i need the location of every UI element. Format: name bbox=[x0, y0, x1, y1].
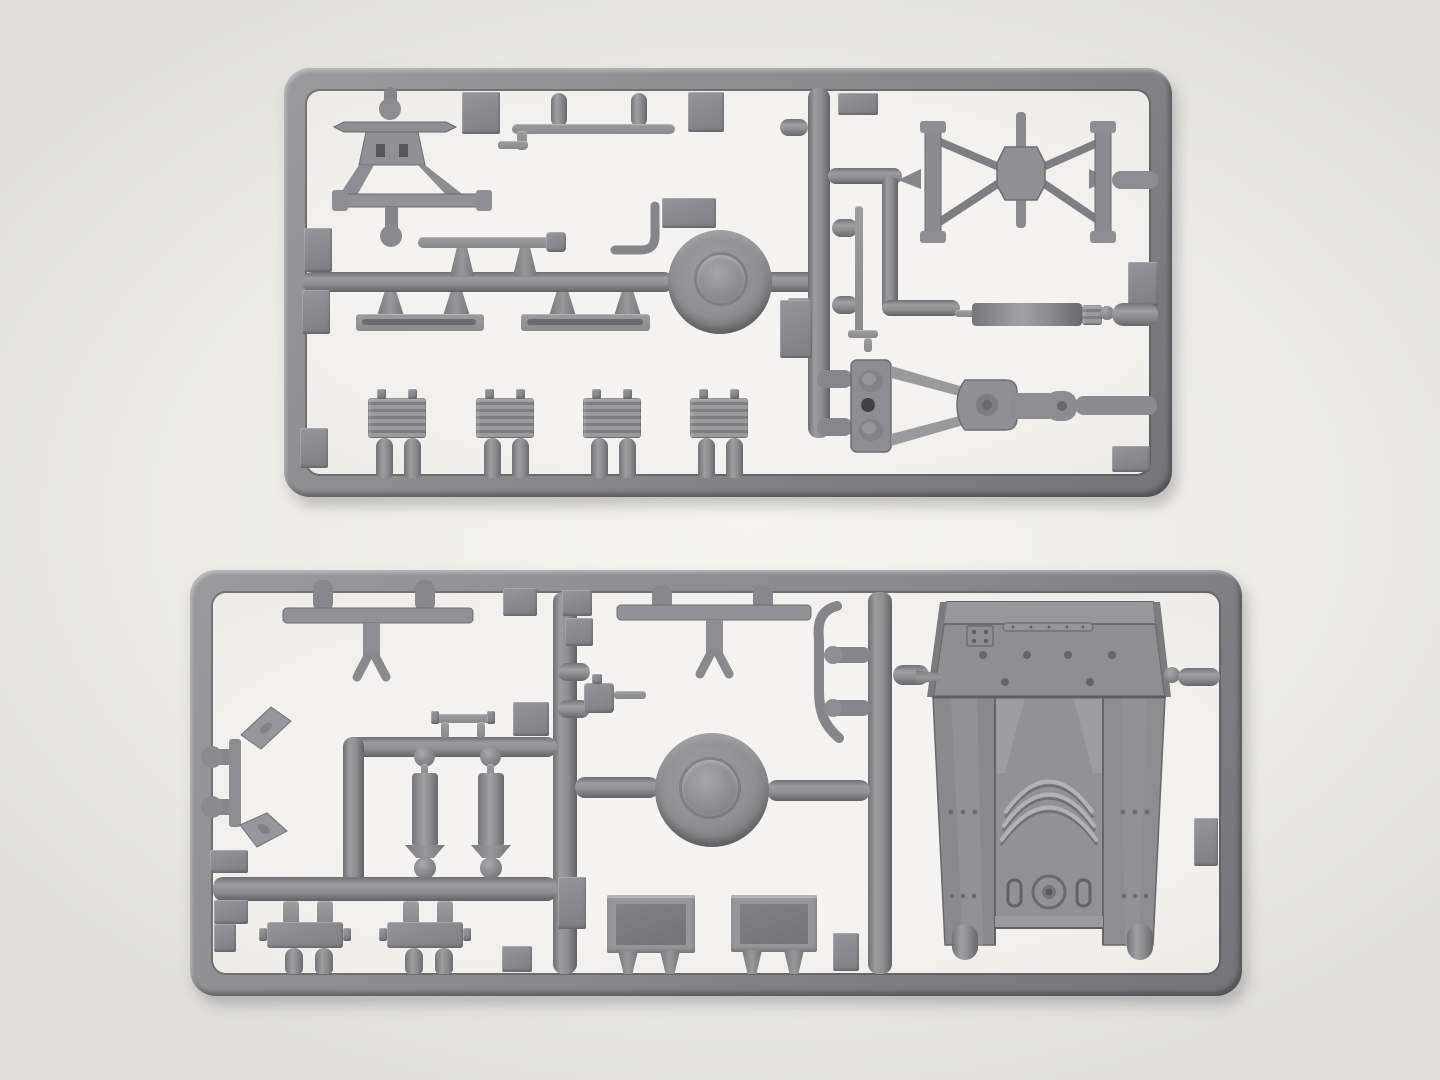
gate bbox=[317, 901, 333, 924]
gate bbox=[285, 948, 303, 974]
gate-ball bbox=[480, 857, 502, 879]
molding-tab bbox=[565, 618, 593, 646]
molding-tab bbox=[558, 877, 586, 929]
gate bbox=[1127, 924, 1153, 960]
link-nub bbox=[379, 928, 387, 941]
gate-ball bbox=[414, 857, 436, 879]
handle-leg bbox=[477, 722, 485, 738]
gate bbox=[558, 663, 590, 681]
gate bbox=[283, 901, 299, 924]
runner bbox=[343, 737, 364, 889]
gate bbox=[952, 924, 978, 960]
gate bbox=[435, 948, 453, 974]
molding-tab bbox=[1194, 818, 1218, 866]
lower-sprue bbox=[0, 0, 1440, 1080]
molding-tab bbox=[503, 588, 537, 616]
cylinder-ring bbox=[410, 812, 440, 819]
t-bar-fork-right-part bbox=[610, 572, 820, 684]
photo-of-model-kit-sprues bbox=[0, 0, 1440, 1080]
handle-leg bbox=[441, 722, 449, 738]
handle-nub bbox=[431, 711, 439, 724]
t-bar-fork-left-part bbox=[275, 573, 485, 685]
fender-bracket-part bbox=[195, 695, 295, 875]
cylinder-ring bbox=[476, 812, 506, 819]
runner bbox=[343, 737, 557, 757]
link-nub bbox=[463, 928, 471, 941]
molding-tab bbox=[214, 900, 248, 924]
gate bbox=[403, 901, 419, 924]
gate bbox=[405, 948, 423, 974]
track-link-part bbox=[267, 922, 343, 948]
handle-nub bbox=[487, 711, 495, 724]
mg-mount-part bbox=[584, 683, 614, 713]
gate bbox=[437, 901, 453, 924]
runner bbox=[213, 877, 557, 901]
track-link-part bbox=[387, 922, 463, 948]
gate bbox=[315, 948, 333, 974]
molding-tab bbox=[833, 933, 859, 971]
hub-sink-mark bbox=[696, 774, 724, 800]
mg-sight-nub bbox=[592, 674, 602, 684]
link-nub bbox=[259, 928, 267, 941]
gate bbox=[1178, 668, 1220, 686]
molding-tab bbox=[214, 924, 236, 952]
molding-tab bbox=[513, 702, 549, 736]
runner-arm bbox=[767, 780, 870, 801]
cylinder-ring bbox=[476, 830, 506, 837]
stowage-box-interior bbox=[740, 904, 808, 944]
runner-arm bbox=[575, 777, 659, 798]
cylinder-ring bbox=[476, 790, 506, 797]
link-nub bbox=[343, 928, 351, 941]
cylinder-ring bbox=[410, 790, 440, 797]
mg-barrel bbox=[614, 691, 646, 699]
molding-tab bbox=[562, 590, 592, 616]
hull-superstructure-part bbox=[925, 598, 1173, 960]
stowage-box-interior bbox=[616, 904, 686, 945]
cylinder-ring bbox=[410, 830, 440, 837]
s-curved-rod-part bbox=[803, 596, 875, 758]
molding-tab bbox=[502, 946, 532, 972]
